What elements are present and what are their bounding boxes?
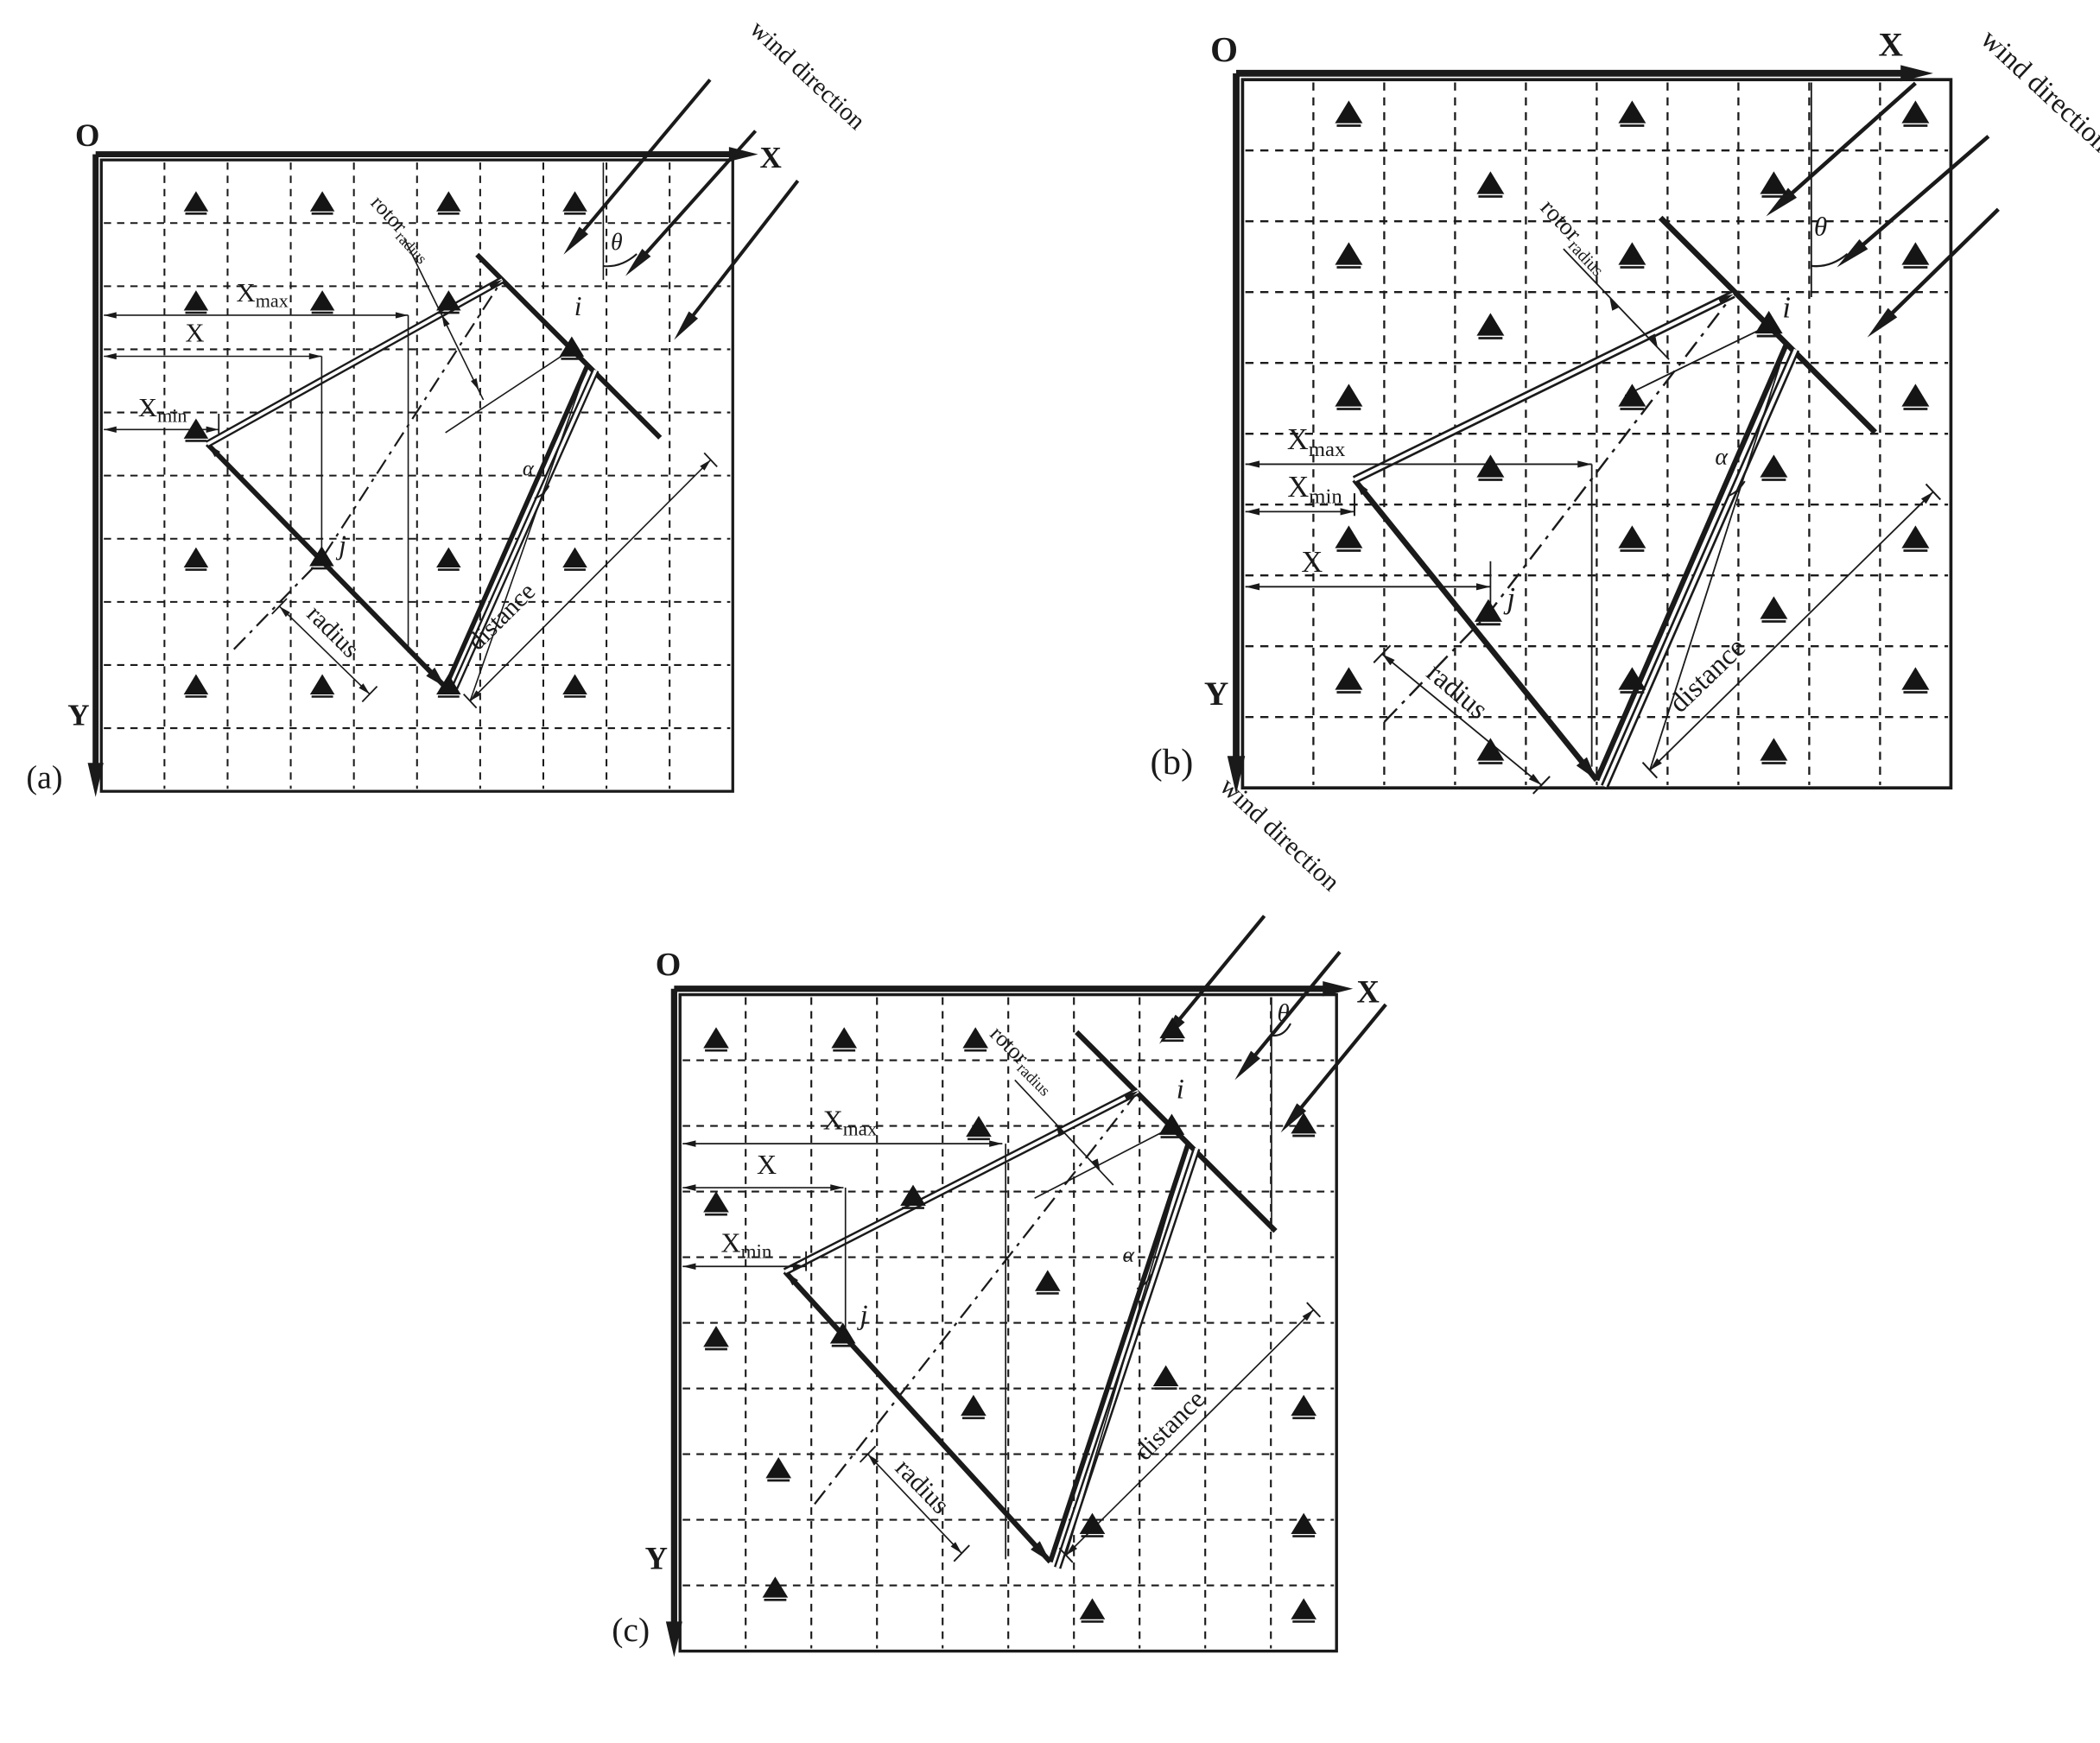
turbine-icon-triangle <box>1618 100 1646 123</box>
rotor-radius-label-sub: radius <box>1564 236 1607 280</box>
rotor-radius-label-sub: radius <box>1013 1060 1054 1100</box>
turbine-connection-line <box>1050 1144 1189 1562</box>
x-dimension-label-main: X <box>138 393 157 422</box>
x-axis-label: X <box>759 141 781 174</box>
rotor-radius-label-sub: radius <box>392 228 430 268</box>
turbine-icon-triangle <box>1079 1513 1105 1534</box>
turbine-icon <box>900 1185 926 1208</box>
turbine-icon-triangle <box>1335 525 1362 548</box>
x-dim-arrow-icon <box>989 1141 1002 1148</box>
turbine-icon <box>1760 454 1787 479</box>
wind-arrow-shaft <box>688 181 797 320</box>
turbine-icon <box>961 1395 987 1418</box>
wind-arrow-shaft <box>641 130 755 257</box>
turbine-icon <box>1476 454 1504 479</box>
panel-caption: (c) <box>612 1612 650 1650</box>
turbine-icon <box>1035 1271 1061 1294</box>
y-axis-label: Y <box>67 698 89 732</box>
turbine-icon-triangle <box>1760 596 1787 618</box>
turbine-icon <box>762 1577 788 1600</box>
x-axis-label: X <box>1878 25 1902 63</box>
turbine-icon-triangle <box>1760 454 1787 477</box>
turbine-icon <box>1476 313 1504 338</box>
x-dim-arrow-icon <box>309 353 322 359</box>
turbine-icon-triangle <box>1291 1395 1316 1416</box>
turbine-icon-triangle <box>436 191 461 211</box>
turbine-icon <box>310 290 335 313</box>
turbine-icon-triangle <box>1476 738 1504 760</box>
turbine-icon <box>1153 1366 1179 1389</box>
turbine-icon-triangle <box>1618 525 1646 548</box>
theta-arc <box>1811 254 1847 266</box>
origin-label: O <box>1210 29 1238 69</box>
turbine-icon <box>831 1028 857 1051</box>
x-dimension-label-main: X <box>1287 471 1309 504</box>
x-dimension-label-main: X <box>823 1106 843 1136</box>
turbine-icon-triangle <box>1035 1271 1061 1291</box>
turbine-icon-triangle <box>1901 667 1929 689</box>
x-dim-arrow-icon <box>1245 460 1259 467</box>
turbine-icon-triangle <box>562 547 587 567</box>
x-dim-arrow-icon <box>1245 508 1259 515</box>
turbine-i-label: i <box>1177 1074 1184 1106</box>
turbine-icon-triangle <box>1291 1513 1316 1534</box>
turbine-j-label: j <box>856 1301 867 1332</box>
x-dim-arrow-icon <box>104 426 117 432</box>
turbine-icon-triangle <box>1901 525 1929 548</box>
x-dimension-label: Xmin <box>1287 471 1342 509</box>
turbine-icon <box>1760 171 1787 196</box>
panel-c-diagram: OXY(c)wind directionθαrotorradiusradiusd… <box>568 758 1553 1743</box>
turbine-icon <box>1335 242 1362 267</box>
x-dim-arrow-icon <box>104 312 117 318</box>
x-dimension-label-sub: max <box>843 1119 878 1140</box>
turbine-icon <box>966 1116 992 1139</box>
origin-label: O <box>656 947 682 983</box>
x-dim-arrow-icon <box>682 1264 695 1271</box>
turbine-array <box>703 1017 1316 1622</box>
turbine-icon-triangle <box>1291 1599 1316 1619</box>
turbine-icon-triangle <box>1153 1366 1179 1386</box>
x-dimension-label-sub: max <box>1308 438 1345 461</box>
turbine-icon <box>562 191 587 213</box>
turbine-icon <box>703 1028 729 1051</box>
turbine-icon-triangle <box>831 1028 857 1049</box>
turbine-j-icon <box>1475 599 1502 624</box>
x-dim-arrow-icon <box>396 312 409 318</box>
turbine-j-label: j <box>1503 581 1515 615</box>
turbine-icon <box>1618 100 1646 125</box>
x-dimension-label-sub: min <box>1309 485 1342 509</box>
x-dim-arrow-icon <box>1476 583 1490 590</box>
turbine-icon <box>1079 1599 1105 1622</box>
turbine-icon-triangle <box>1476 454 1504 477</box>
wind-direction-label: wind direction <box>745 15 871 135</box>
wake-boundary-double-line-core <box>1355 294 1734 479</box>
turbine-icon-triangle <box>703 1028 729 1049</box>
turbine-icon-triangle <box>436 290 461 310</box>
x-dimension-label: X <box>1301 546 1323 579</box>
turbine-icon <box>765 1457 791 1480</box>
x-dimension-label-main: X <box>236 278 255 307</box>
turbine-icon-triangle <box>562 191 587 211</box>
x-dimension-label-sub: max <box>255 290 288 312</box>
turbine-icon-triangle <box>1618 242 1646 264</box>
turbine-icon <box>183 290 208 313</box>
turbine-icon <box>183 547 208 569</box>
theta-label: θ <box>611 229 623 256</box>
alpha-reference-line <box>470 365 587 701</box>
turbine-icon <box>962 1028 988 1051</box>
turbine-icon-triangle <box>183 290 208 310</box>
turbine-icon-triangle <box>562 674 587 694</box>
turbine-icon-triangle <box>436 547 461 567</box>
turbine-array <box>1335 100 1929 763</box>
turbine-icon <box>310 674 335 696</box>
turbine-icon <box>1476 171 1504 196</box>
wind-arrow-shaft <box>1175 916 1264 1025</box>
turbine-j-icon-triangle <box>1475 599 1502 621</box>
turbine-array <box>183 191 587 696</box>
turbine-icon <box>703 1326 729 1349</box>
turbine-icon <box>1291 1513 1316 1537</box>
theta-label: θ <box>1813 211 1826 241</box>
x-dim-arrow-icon <box>682 1141 695 1148</box>
x-dim-arrow-icon <box>206 426 219 432</box>
x-dimension-label: X <box>185 319 204 348</box>
y-axis-label: Y <box>644 1541 667 1576</box>
turbine-icon <box>1901 667 1929 692</box>
turbine-icon <box>436 191 461 213</box>
x-axis-label: X <box>1356 974 1379 1010</box>
turbine-icon <box>1291 1395 1316 1418</box>
x-dimension-label-main: X <box>720 1228 740 1258</box>
turbine-icon-triangle <box>1476 171 1504 193</box>
turbine-icon-triangle <box>762 1577 788 1598</box>
turbine-icon <box>1335 525 1362 550</box>
turbine-icon-triangle <box>1901 242 1929 264</box>
turbine-icon <box>1618 525 1646 550</box>
origin-label: O <box>75 117 99 153</box>
alpha-label: α <box>1715 443 1729 470</box>
wake-centerline <box>1384 294 1733 721</box>
panel-a-diagram: OXY(a)wind directionθαrotorradiusradiusd… <box>0 0 941 879</box>
turbine-icon <box>1335 383 1362 409</box>
wake-centerline <box>234 280 503 650</box>
x-dimension-label: Xmax <box>823 1106 878 1140</box>
alpha-label: α <box>523 458 535 481</box>
turbine-icon-triangle <box>961 1395 987 1416</box>
turbine-icon-triangle <box>703 1192 729 1213</box>
wind-arrow-shaft <box>1857 136 1989 250</box>
turbine-i-label: i <box>574 291 582 321</box>
x-dimension-label: Xmax <box>236 278 288 312</box>
turbine-icon-triangle <box>1760 738 1787 760</box>
turbine-icon-triangle <box>310 290 335 310</box>
rotor-plane-line-j <box>1355 479 1596 780</box>
turbine-icon-triangle <box>1079 1599 1105 1619</box>
turbine-icon-triangle <box>1335 100 1362 123</box>
turbine-icon-triangle <box>1476 313 1504 335</box>
rotor-radius-label: rotorradius <box>364 191 437 267</box>
turbine-icon-triangle <box>1335 242 1362 264</box>
x-dim-arrow-icon <box>1577 460 1591 467</box>
turbine-icon <box>703 1192 729 1215</box>
turbine-icon <box>1291 1599 1316 1622</box>
wind-arrow-shaft <box>579 79 710 236</box>
x-dimension-label-sub: min <box>740 1241 771 1263</box>
turbine-icon-triangle <box>900 1185 926 1206</box>
alpha-reference-line <box>1649 344 1786 770</box>
x-dim-arrow-icon <box>1340 508 1354 515</box>
x-dimension-label-main: X <box>1287 423 1309 456</box>
turbine-icon <box>1079 1513 1105 1537</box>
wind-arrow-shaft <box>1297 1005 1386 1113</box>
theta-label: θ <box>1277 999 1289 1027</box>
x-dim-arrow-icon <box>104 353 117 359</box>
turbine-icon-triangle <box>765 1457 791 1478</box>
turbine-icon <box>1901 242 1929 267</box>
turbine-icon <box>1901 100 1929 125</box>
turbine-icon <box>1335 100 1362 125</box>
turbine-icon <box>1335 667 1362 692</box>
turbine-icon <box>183 674 208 696</box>
turbine-icon-triangle <box>310 191 335 211</box>
turbine-icon-triangle <box>962 1028 988 1049</box>
turbine-icon <box>562 674 587 696</box>
connection-double-line-core <box>1057 1149 1196 1569</box>
x-dimension-label: X <box>757 1150 777 1180</box>
turbine-icon <box>310 191 335 213</box>
wind-arrow-shaft <box>1251 953 1340 1062</box>
wind-arrow-shaft <box>1786 83 1915 198</box>
wind-direction-group: wind direction <box>563 15 871 339</box>
distance-dimension-line <box>1649 491 1932 770</box>
rotor-radius-arrow-icon <box>441 314 449 326</box>
turbine-icon-triangle <box>183 547 208 567</box>
y-axis-label: Y <box>1203 675 1228 713</box>
turbine-icon-triangle <box>1760 171 1787 193</box>
rotor-radius-label: rotorradius <box>1532 194 1615 281</box>
turbine-icon-triangle <box>1901 100 1929 123</box>
x-dimension-label-sub: min <box>157 405 187 427</box>
grid <box>682 998 1334 1649</box>
turbine-icon-triangle <box>183 418 208 438</box>
panel-b-diagram: OXY(b)wind directionθαrotorradiusradiusd… <box>1122 0 2100 887</box>
wind-direction-group: wind direction <box>1159 771 1386 1132</box>
rotor-radius-arrow-icon <box>1092 1159 1101 1172</box>
wind-direction-label: wind direction <box>1974 23 2100 158</box>
wind-direction-label: wind direction <box>1215 771 1346 897</box>
turbine-icon <box>1618 242 1646 267</box>
alpha-reference-line <box>1066 1144 1188 1556</box>
radius-label: radius <box>301 600 364 663</box>
turbine-icon <box>436 547 461 569</box>
x-dimension-label: Xmin <box>138 393 187 427</box>
rotor-plane-line-j <box>785 1272 1050 1562</box>
radius-label: radius <box>890 1454 955 1520</box>
rotor-radius-arrow-icon <box>1609 297 1619 311</box>
x-dim-arrow-icon <box>830 1185 843 1192</box>
panel-caption: (a) <box>26 759 62 795</box>
alpha-label: α <box>1122 1242 1134 1267</box>
turbine-icon-triangle <box>183 191 208 211</box>
turbine-i-label: i <box>1782 291 1791 325</box>
turbine-icon <box>1760 596 1787 621</box>
turbine-icon <box>562 547 587 569</box>
x-dim-arrow-icon <box>1245 583 1259 590</box>
x-dimension-label: Xmax <box>1287 423 1346 461</box>
turbine-icon-triangle <box>1335 383 1362 406</box>
turbine-icon <box>183 191 208 213</box>
turbine-icon-triangle <box>310 674 335 694</box>
turbine-icon <box>1901 383 1929 409</box>
turbine-icon-triangle <box>183 674 208 694</box>
theta-arc <box>603 254 637 266</box>
distance-label: distance <box>1663 632 1751 719</box>
turbine-icon-triangle <box>1335 667 1362 689</box>
turbine-icon-triangle <box>703 1326 729 1347</box>
rotor-radius-parallel-line <box>1034 1128 1171 1199</box>
turbine-icon-triangle <box>1901 383 1929 406</box>
x-dim-arrow-icon <box>682 1185 695 1192</box>
turbine-icon <box>1760 738 1787 763</box>
rotor-radius-arrow-icon <box>471 378 479 390</box>
turbine-icon <box>1901 525 1929 550</box>
